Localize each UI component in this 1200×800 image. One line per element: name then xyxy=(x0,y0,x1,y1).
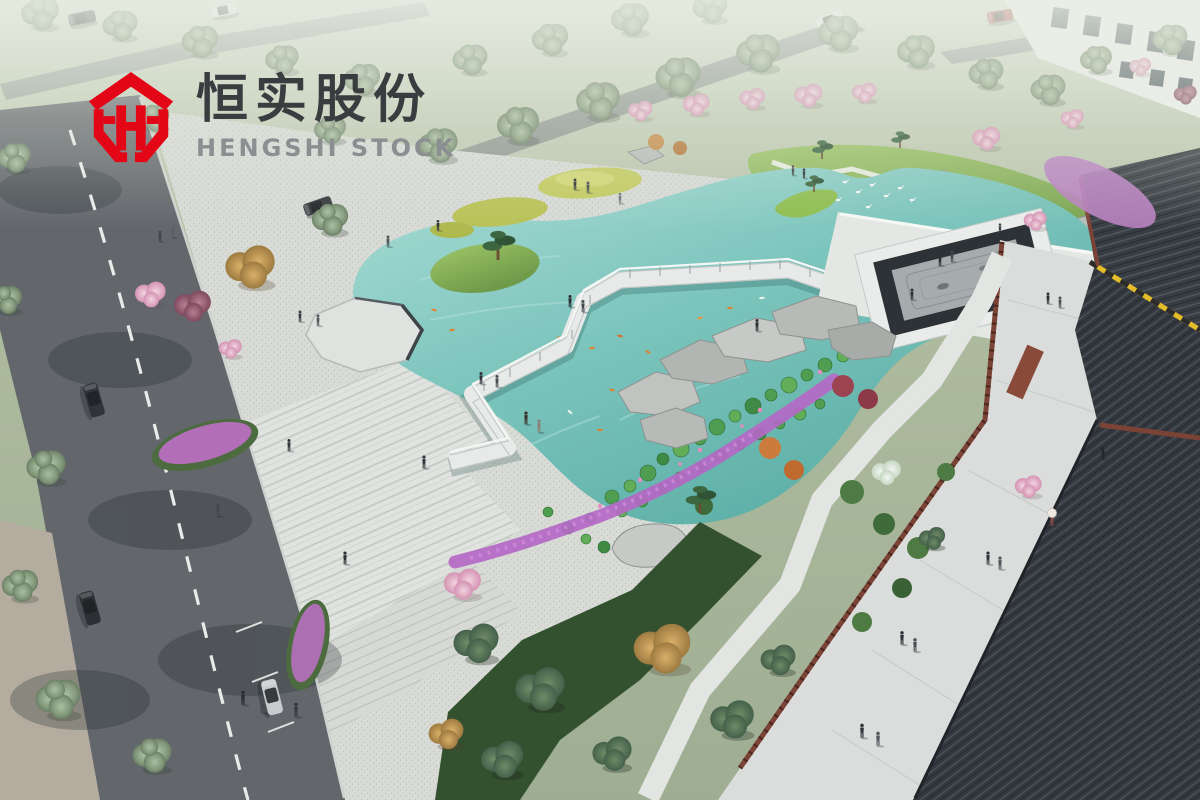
logo-english-name: HENGSHI STOCK xyxy=(196,134,456,162)
logo-text-block: 恒实股份 HENGSHI STOCK xyxy=(196,68,456,162)
rendering-canvas: 恒实股份 HENGSHI STOCK xyxy=(0,0,1200,800)
hengshi-emblem-icon xyxy=(82,68,180,174)
hengshi-logo: 恒实股份 HENGSHI STOCK xyxy=(82,68,456,174)
logo-chinese-name: 恒实股份 xyxy=(196,68,456,133)
